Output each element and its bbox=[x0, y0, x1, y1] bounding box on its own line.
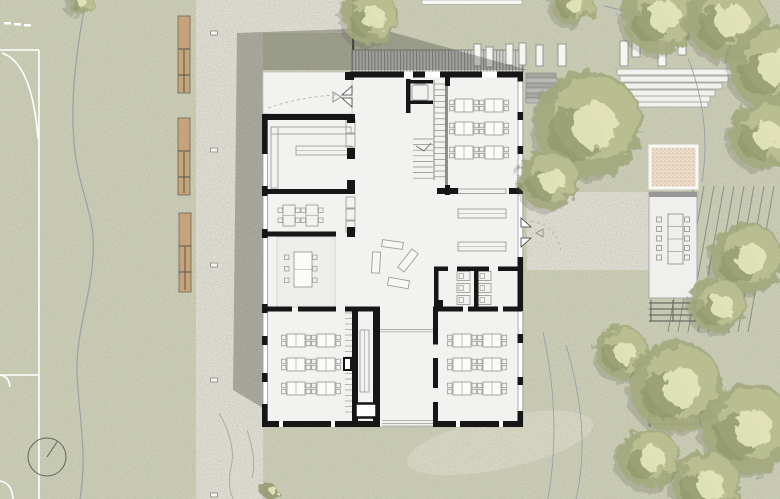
bollard bbox=[211, 378, 218, 382]
amphitheater-step bbox=[617, 69, 734, 75]
wall bbox=[262, 232, 336, 237]
shrub-highlight bbox=[268, 485, 276, 493]
school-building bbox=[262, 72, 561, 428]
court-mark bbox=[4, 22, 11, 25]
bench-plank bbox=[558, 44, 566, 66]
window-gap bbox=[331, 421, 335, 427]
wall bbox=[433, 358, 438, 388]
wall bbox=[262, 336, 268, 345]
wall bbox=[433, 421, 523, 427]
tree-canopy-highlight bbox=[710, 294, 734, 318]
bench-plank bbox=[620, 41, 628, 66]
wall-cabinet-inner bbox=[345, 359, 350, 369]
wall bbox=[347, 227, 355, 237]
sandbox bbox=[650, 146, 697, 188]
tree-canopy-highlight bbox=[715, 4, 749, 38]
wall bbox=[518, 377, 524, 385]
tree-canopy-highlight bbox=[649, 1, 681, 33]
service-shaft bbox=[356, 404, 377, 418]
tree-canopy-highlight bbox=[572, 102, 617, 147]
amphitheater-step bbox=[631, 96, 710, 102]
wall bbox=[262, 404, 268, 427]
garden-pavilion bbox=[649, 192, 697, 298]
amphitheater-step bbox=[634, 102, 708, 107]
wall bbox=[262, 114, 355, 120]
tree-canopy-highlight bbox=[734, 410, 773, 449]
amphitheater-step bbox=[624, 83, 722, 89]
court-mark bbox=[24, 24, 31, 27]
pavilion-roof-edge bbox=[649, 192, 697, 197]
wall bbox=[474, 267, 479, 311]
wall bbox=[503, 307, 522, 312]
wall bbox=[518, 267, 524, 311]
wall bbox=[407, 101, 433, 105]
wall bbox=[345, 72, 354, 80]
wall bbox=[518, 411, 524, 427]
wall bbox=[433, 307, 438, 345]
window-gap bbox=[482, 72, 497, 78]
bollard bbox=[211, 263, 218, 267]
wall bbox=[518, 146, 524, 154]
tree-canopy-highlight bbox=[540, 168, 565, 193]
tree-canopy-highlight bbox=[662, 368, 701, 407]
tree-canopy-highlight bbox=[696, 470, 725, 499]
bench-plank bbox=[536, 45, 543, 66]
wall bbox=[262, 189, 355, 194]
wall bbox=[518, 257, 524, 268]
tree-canopy-highlight bbox=[640, 446, 665, 471]
roof-edge-bar bbox=[422, 0, 522, 5]
tree-canopy-highlight bbox=[614, 342, 636, 364]
window-gap bbox=[456, 421, 460, 427]
wall bbox=[266, 307, 292, 312]
wall bbox=[298, 307, 336, 312]
tree-canopy-highlight bbox=[736, 244, 766, 274]
glazing-band bbox=[518, 77, 523, 421]
window-gap bbox=[425, 72, 440, 78]
court-mark bbox=[14, 23, 21, 26]
wall bbox=[518, 112, 524, 120]
site-plan-svg bbox=[0, 0, 780, 499]
bollard bbox=[211, 148, 218, 152]
amphitheater-step bbox=[628, 90, 715, 96]
ne-stair-step bbox=[526, 78, 558, 83]
window-gap bbox=[404, 72, 413, 78]
wall bbox=[433, 402, 438, 427]
wall bbox=[445, 77, 450, 86]
bench-plank bbox=[519, 43, 526, 65]
window-gap bbox=[279, 421, 283, 427]
floor-plan-canvas bbox=[0, 0, 780, 499]
wall bbox=[468, 307, 498, 312]
hall-bench bbox=[371, 252, 380, 273]
wall bbox=[457, 267, 489, 272]
wall bbox=[518, 72, 524, 82]
window-gap bbox=[499, 421, 503, 427]
wall bbox=[347, 148, 355, 159]
wall bbox=[407, 80, 433, 84]
wall bbox=[518, 334, 524, 343]
bollard bbox=[211, 31, 218, 35]
ne-stair-step bbox=[526, 73, 556, 78]
wall bbox=[347, 180, 355, 190]
tree-canopy-highlight bbox=[362, 6, 386, 30]
wall bbox=[347, 114, 355, 123]
wall bbox=[498, 267, 522, 272]
bench-group bbox=[178, 16, 191, 292]
amphitheater-step bbox=[620, 76, 728, 82]
bollard bbox=[211, 493, 218, 497]
entry-porch bbox=[263, 72, 352, 114]
bench-plank bbox=[506, 44, 513, 65]
wall bbox=[437, 188, 458, 194]
wall bbox=[262, 373, 268, 382]
wall bbox=[407, 80, 411, 104]
